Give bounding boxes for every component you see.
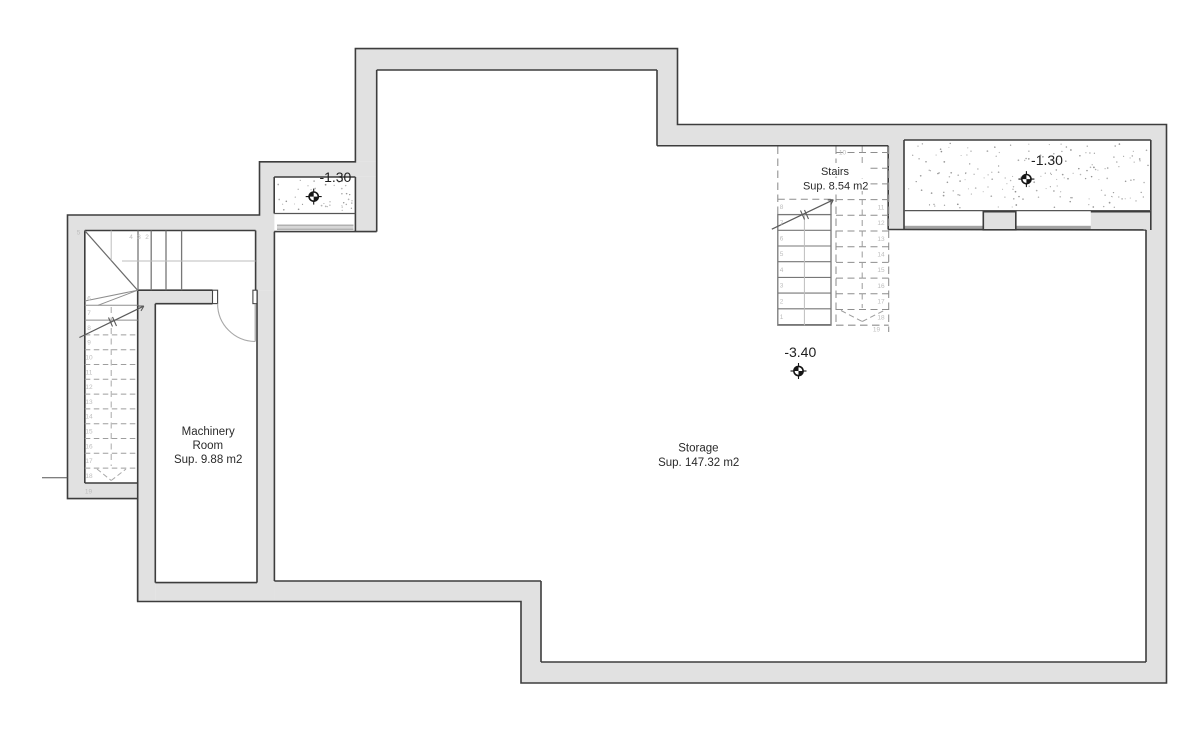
svg-text:2: 2: [780, 298, 784, 305]
svg-text:Machinery: Machinery: [182, 426, 235, 438]
svg-text:5: 5: [780, 251, 784, 258]
svg-text:14: 14: [877, 252, 885, 259]
svg-text:15: 15: [85, 429, 93, 436]
svg-text:15: 15: [877, 267, 885, 274]
svg-text:17: 17: [877, 299, 885, 306]
svg-text:Storage: Storage: [678, 443, 718, 455]
svg-text:18: 18: [877, 314, 885, 321]
svg-text:Sup. 8.54 m2: Sup. 8.54 m2: [803, 180, 868, 192]
svg-text:Sup. 9.88 m2: Sup. 9.88 m2: [174, 454, 242, 466]
svg-text:4: 4: [780, 267, 784, 274]
svg-text:Room: Room: [192, 440, 223, 452]
svg-text:11: 11: [878, 204, 885, 211]
svg-text:18: 18: [85, 473, 93, 480]
svg-text:10: 10: [839, 150, 847, 157]
svg-text:11: 11: [86, 369, 93, 376]
svg-text:Sup. 147.32 m2: Sup. 147.32 m2: [658, 457, 739, 469]
svg-text:16: 16: [85, 443, 93, 450]
svg-text:6: 6: [87, 295, 91, 302]
svg-text:7: 7: [780, 220, 784, 227]
svg-text:2: 2: [145, 234, 149, 241]
svg-text:7: 7: [87, 310, 91, 317]
svg-text:8: 8: [780, 204, 784, 211]
svg-text:9: 9: [87, 340, 91, 347]
svg-text:-3.40: -3.40: [784, 344, 816, 360]
svg-text:19: 19: [873, 327, 881, 334]
svg-text:12: 12: [877, 220, 885, 227]
svg-text:13: 13: [877, 236, 885, 243]
svg-text:8: 8: [87, 325, 91, 332]
svg-text:19: 19: [85, 489, 93, 496]
svg-text:5: 5: [77, 230, 81, 237]
svg-text:13: 13: [85, 399, 93, 406]
svg-text:1: 1: [780, 314, 784, 321]
svg-text:4: 4: [129, 234, 133, 241]
svg-text:12: 12: [85, 384, 93, 391]
svg-text:-1.30: -1.30: [319, 169, 351, 185]
svg-text:-1.30: -1.30: [1031, 152, 1063, 168]
svg-text:Stairs: Stairs: [821, 166, 850, 178]
svg-text:14: 14: [85, 414, 93, 421]
svg-text:3: 3: [137, 234, 141, 241]
svg-text:10: 10: [85, 355, 93, 362]
svg-text:6: 6: [780, 236, 784, 243]
svg-text:16: 16: [877, 283, 885, 290]
svg-text:17: 17: [85, 458, 93, 465]
svg-text:3: 3: [780, 283, 784, 290]
